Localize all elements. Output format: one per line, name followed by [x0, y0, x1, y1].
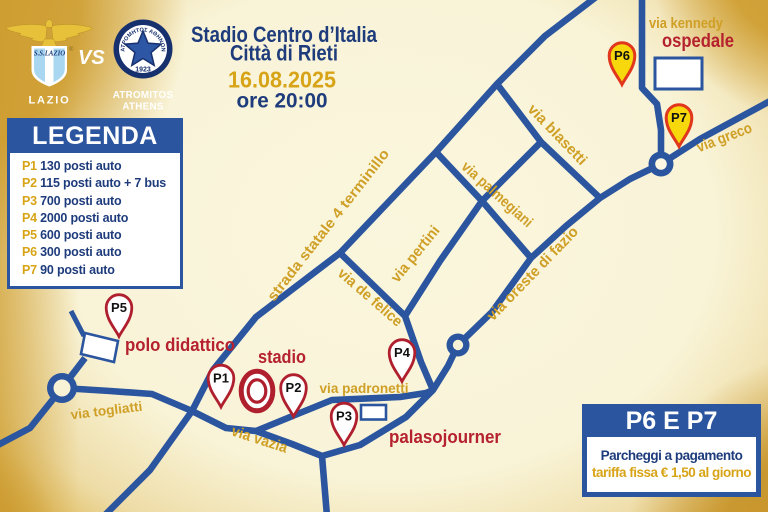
- svg-text:via oreste di fazio: via oreste di fazio: [484, 223, 582, 324]
- svg-text:via pertini: via pertini: [388, 222, 444, 286]
- svg-text:S.S.LAZIO: S.S.LAZIO: [34, 51, 65, 58]
- svg-text:P3: P3: [336, 409, 352, 424]
- svg-text:LAZIO: LAZIO: [29, 95, 71, 107]
- svg-text:P7: P7: [671, 110, 687, 125]
- svg-text:polo didattico: polo didattico: [125, 335, 235, 355]
- svg-text:P5: P5: [111, 300, 127, 315]
- svg-text:1923: 1923: [135, 67, 151, 74]
- svg-text:via kennedy: via kennedy: [649, 15, 724, 32]
- svg-text:P2: P2: [286, 380, 302, 395]
- svg-text:ATHENS: ATHENS: [122, 102, 164, 113]
- svg-text:P1: P1: [213, 371, 229, 386]
- svg-text:palasojourner: palasojourner: [389, 427, 501, 447]
- svg-text:via togliatti: via togliatti: [70, 399, 143, 423]
- svg-text:®: ®: [69, 46, 74, 53]
- svg-text:Città di Rieti: Città di Rieti: [230, 41, 338, 66]
- svg-text:ospedale: ospedale: [662, 31, 734, 52]
- svg-text:stadio: stadio: [258, 347, 306, 367]
- svg-text:ore 20:00: ore 20:00: [237, 90, 328, 113]
- svg-text:P6: P6: [614, 48, 630, 63]
- svg-text:strada statale 4 terminillo: strada statale 4 terminillo: [265, 146, 393, 304]
- svg-text:ATROMITOS: ATROMITOS: [113, 90, 174, 101]
- svg-text:via padronetti: via padronetti: [320, 380, 409, 396]
- svg-text:P4: P4: [394, 345, 411, 360]
